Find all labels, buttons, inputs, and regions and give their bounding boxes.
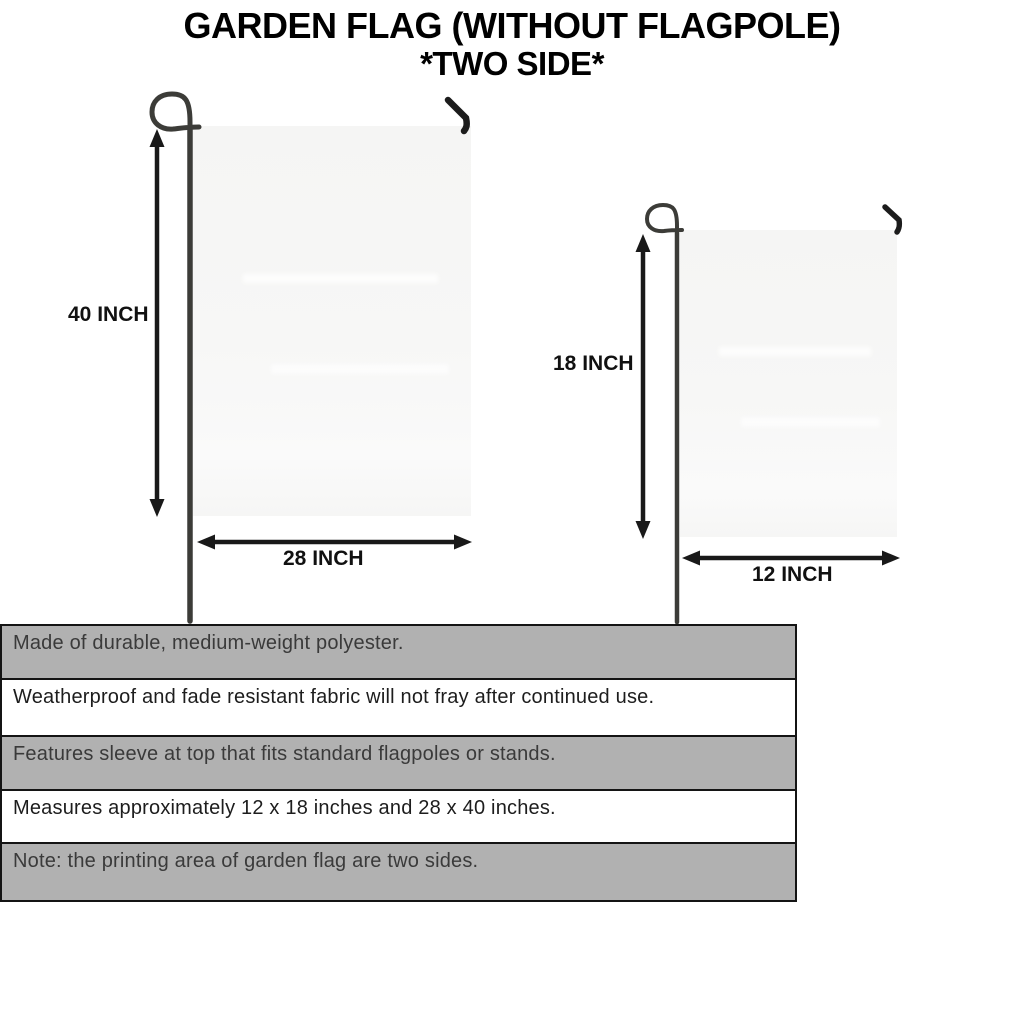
large-flag-width-label: 28 INCH [283, 547, 364, 571]
small-flag-width-label: 12 INCH [752, 563, 833, 587]
small-flag-height-arrow [636, 234, 651, 539]
large-flag-height-arrow [150, 129, 165, 517]
feature-row-sleeve: Features sleeve at top that fits standar… [2, 737, 795, 791]
feature-row-note: Note: the printing area of garden flag a… [2, 844, 795, 900]
feature-row-weatherproof: Weatherproof and fade resistant fabric w… [2, 680, 795, 737]
large-flagpole-hook-icon [448, 100, 467, 131]
garden-flag-infographic: GARDEN FLAG (WITHOUT FLAGPOLE) *TWO SIDE… [0, 0, 1024, 1024]
small-flagpole-hook-icon [885, 207, 899, 232]
features-table: Made of durable, medium-weight polyester… [0, 624, 797, 902]
small-flag-height-label: 18 INCH [553, 352, 634, 376]
feature-row-measures: Measures approximately 12 x 18 inches an… [2, 791, 795, 844]
large-flag-height-label: 40 INCH [68, 303, 149, 327]
feature-row-material: Made of durable, medium-weight polyester… [2, 626, 795, 680]
